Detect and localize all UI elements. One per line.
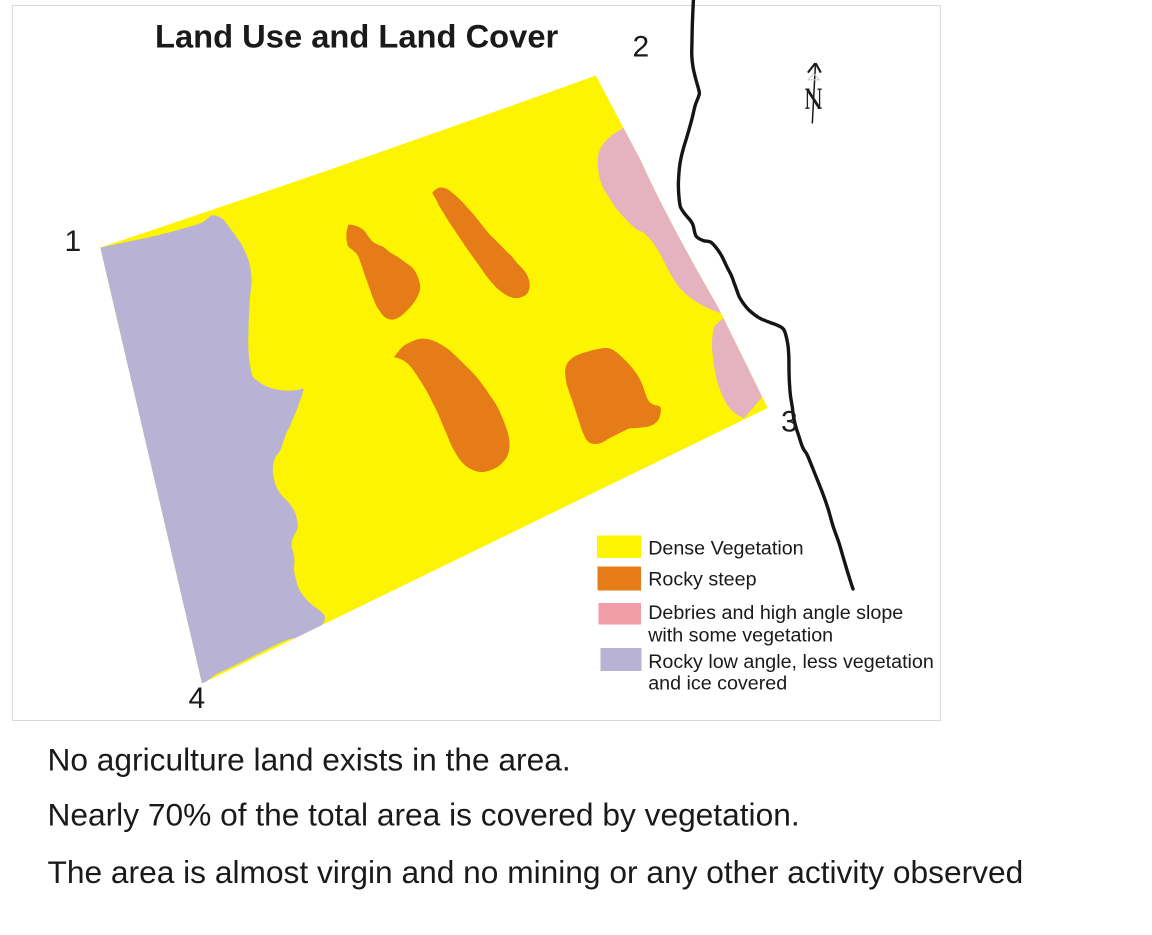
- svg-text:Rocky steep: Rocky steep: [648, 568, 756, 590]
- svg-text:Dense Vegetation: Dense Vegetation: [648, 538, 803, 560]
- svg-text:and ice covered: and ice covered: [648, 672, 787, 694]
- svg-text:No agriculture land exists in: No agriculture land exists in the area.: [48, 742, 571, 778]
- svg-text:Debries and high angle slope: Debries and high angle slope: [648, 602, 903, 624]
- svg-text:The area is almost virgin and: The area is almost virgin and no mining …: [48, 854, 1024, 890]
- svg-text:Rocky low angle, less vegetati: Rocky low angle, less vegetation: [648, 651, 934, 673]
- svg-text:Land Use and Land Cover: Land Use and Land Cover: [155, 18, 558, 55]
- svg-text:3: 3: [781, 406, 798, 439]
- svg-text:1: 1: [65, 225, 82, 258]
- svg-text:4: 4: [189, 682, 206, 715]
- svg-text:Nearly 70% of the total area i: Nearly 70% of the total area is covered …: [48, 797, 800, 833]
- svg-text:2: 2: [633, 31, 650, 64]
- svg-text:with some vegetation: with some vegetation: [647, 624, 833, 646]
